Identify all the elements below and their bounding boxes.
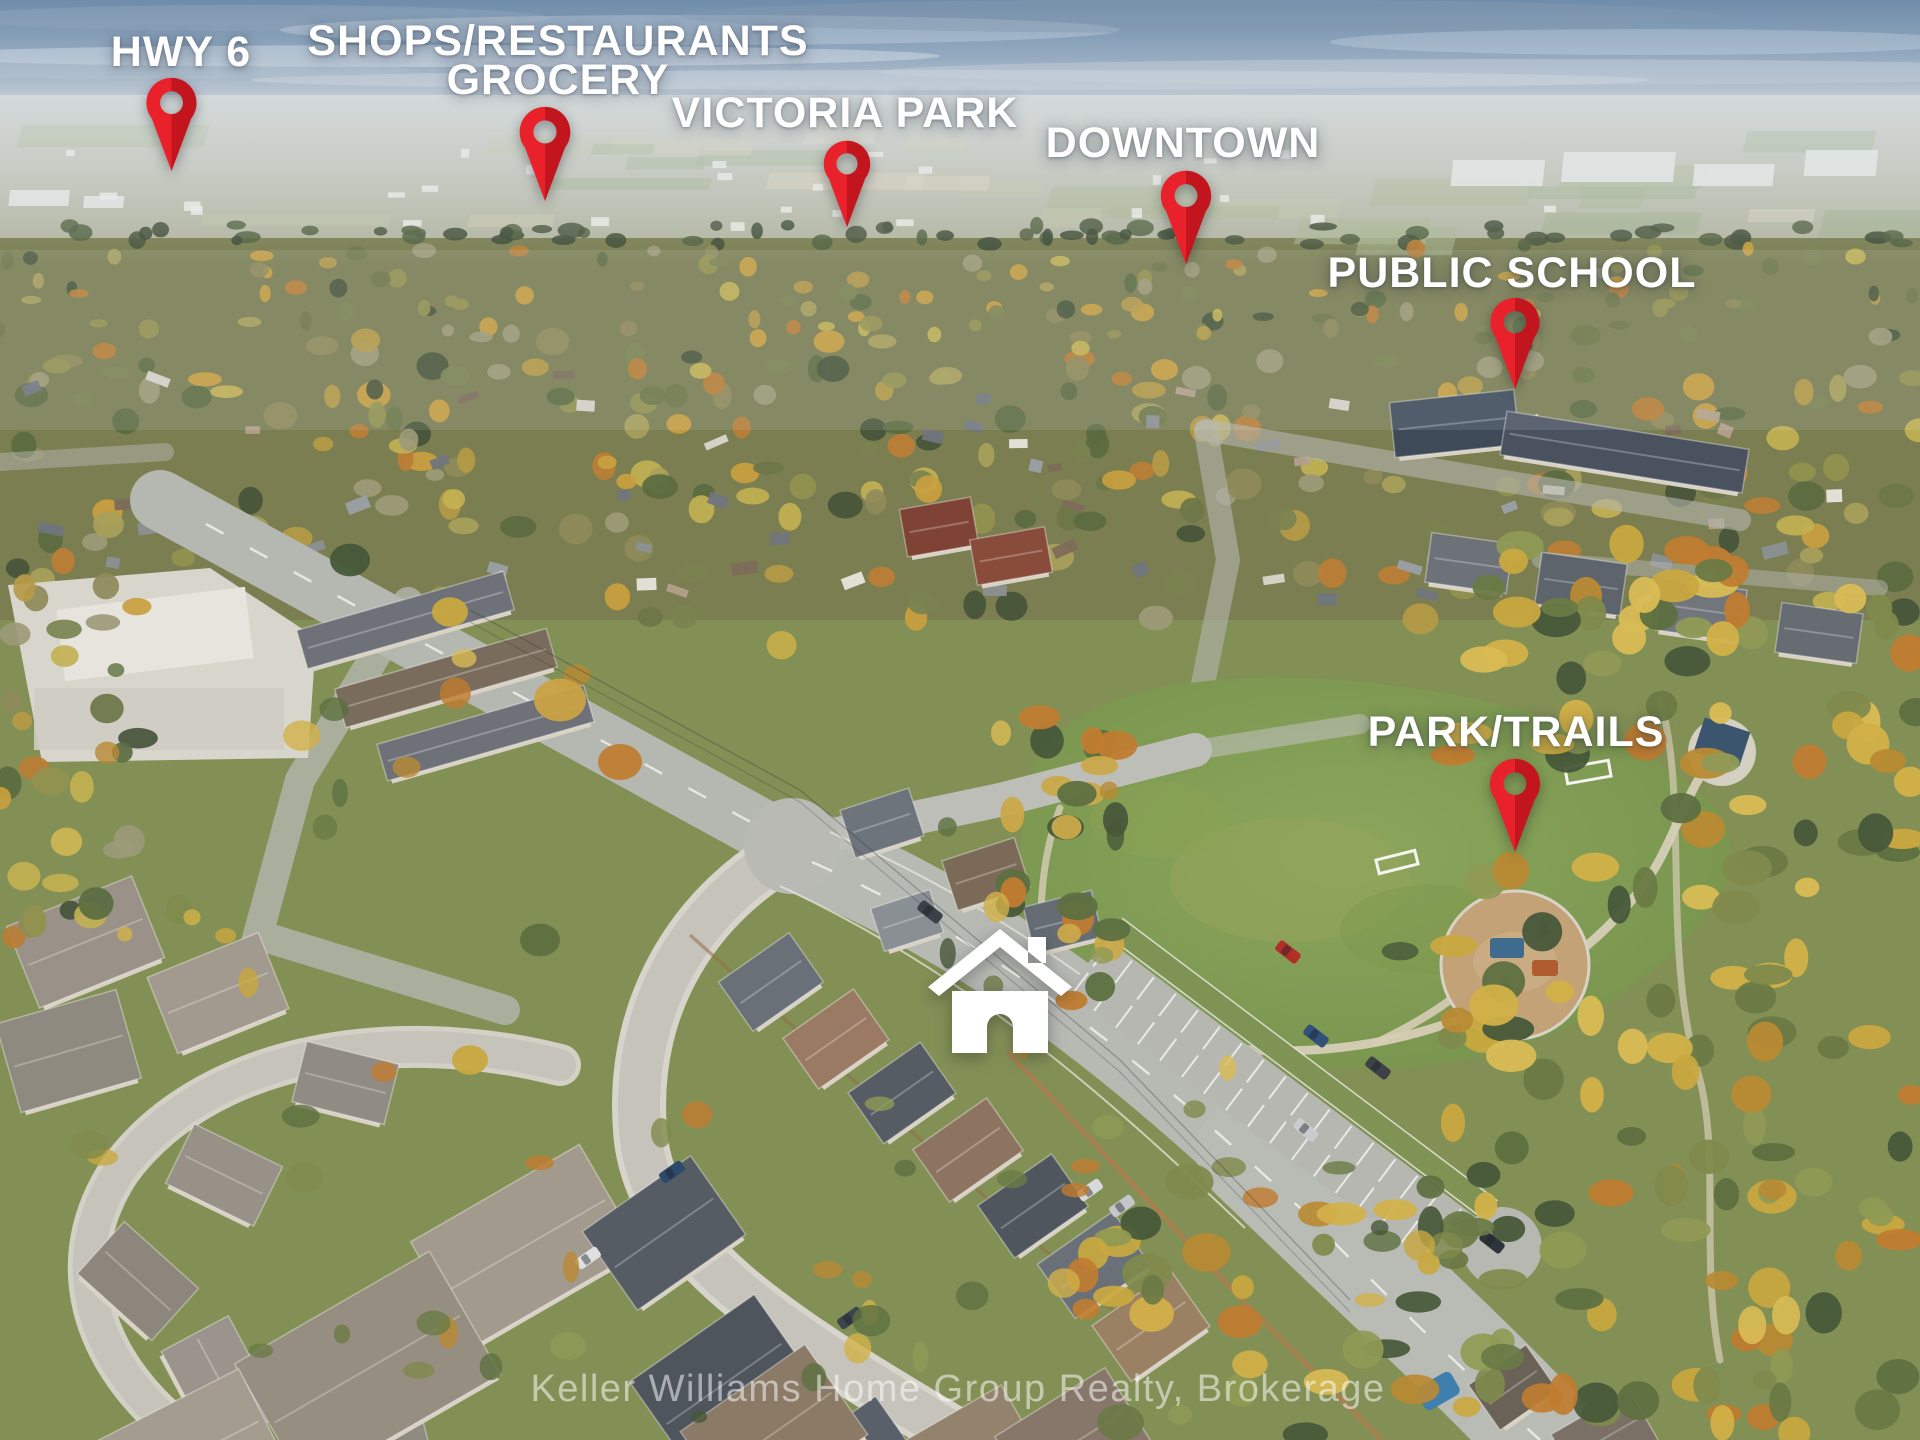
map-pin-icon-shops-grocery xyxy=(517,106,573,202)
location-label-shops-grocery: SHOPS/RESTAURANTS GROCERY xyxy=(307,22,808,99)
location-label-hwy-6: HWY 6 xyxy=(111,33,251,72)
map-pin-icon-public-school xyxy=(1487,297,1543,390)
house-icon xyxy=(925,925,1075,1057)
label-text: VICTORIA PARK xyxy=(672,94,1019,133)
location-label-park-trails: PARK/TRAILS xyxy=(1368,713,1665,752)
map-pin-icon-park-trails xyxy=(1487,758,1543,853)
location-label-victoria-park: VICTORIA PARK xyxy=(672,94,1019,133)
label-text: PUBLIC SCHOOL xyxy=(1328,254,1697,293)
map-pin-icon-downtown xyxy=(1160,168,1212,267)
aerial-neighbourhood-photo: HWY 6 SHOPS/RESTAURANTS GROCERY VICTORIA… xyxy=(0,0,1920,1440)
location-label-downtown: DOWNTOWN xyxy=(1046,124,1321,163)
map-pin-icon-hwy-6 xyxy=(143,77,200,172)
label-text: PARK/TRAILS xyxy=(1368,713,1665,752)
map-pin-icon-victoria-park xyxy=(822,140,872,228)
label-text: DOWNTOWN xyxy=(1046,124,1321,163)
label-text: HWY 6 xyxy=(111,33,251,72)
location-label-public-school: PUBLIC SCHOOL xyxy=(1328,254,1697,293)
brokerage-watermark: Keller Williams Home Group Realty, Broke… xyxy=(530,1368,1385,1411)
label-text: SHOPS/RESTAURANTS xyxy=(307,22,808,61)
